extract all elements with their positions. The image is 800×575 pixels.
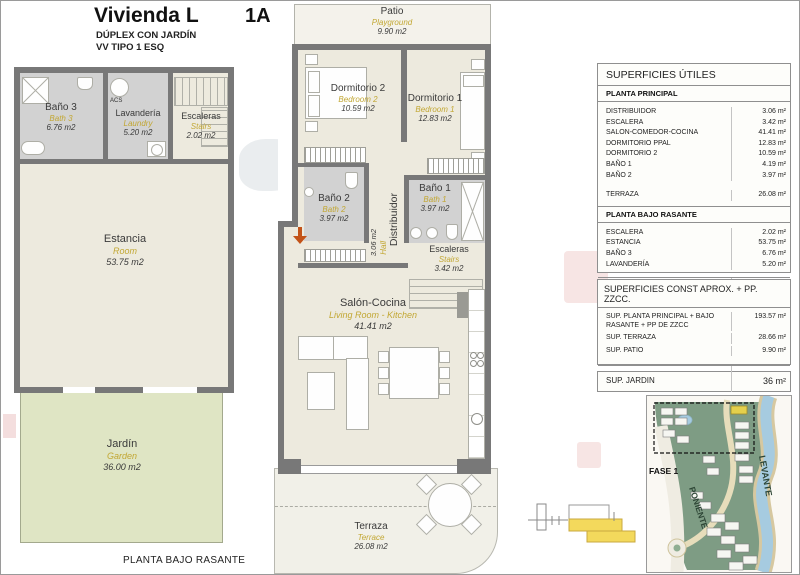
site-map: FASE 1 PONIENTE LEVANTE <box>646 395 792 573</box>
section-sketch-drawing <box>528 496 640 548</box>
table-row-jardin: SUP. JARDIN 36 m² <box>598 372 790 391</box>
door-opening <box>63 387 95 393</box>
bathtub-icon <box>21 141 45 155</box>
dining-chair-icon <box>378 367 389 379</box>
sink-icon <box>410 227 422 239</box>
kitchen-column <box>457 292 468 318</box>
room-label-bath3: Baño 3 Bath 3 6.76 m2 <box>26 102 96 133</box>
highlighted-building <box>731 406 747 414</box>
room-label-stairs-lower: Escaleras Stairs 2.02 m2 <box>175 111 227 140</box>
room-label-laundry: Lavandería Laundry 5.20 m2 <box>109 108 167 137</box>
subtitle-line1: DÚPLEX CON JARDÍN <box>96 30 196 42</box>
table-rows-principal: DISTRIBUIDOR 3.06 m² ESCALERA 3.42 m² SA… <box>598 102 790 184</box>
arrow-head <box>293 236 307 244</box>
shower-icon <box>461 182 484 241</box>
glass-door <box>301 465 457 474</box>
table-row: ESTANCIA 53.75 m² <box>598 238 790 249</box>
surface-table-utiles: SUPERFICIES ÚTILES PLANTA PRINCIPAL DIST… <box>597 63 791 273</box>
nightstand-icon <box>471 59 485 70</box>
subtitle-line2: VV TIPO 1 ESQ <box>96 42 164 54</box>
shower-lines-icon <box>23 78 48 103</box>
room-label-patio: Patio Playground 9.90 m2 <box>332 6 452 37</box>
table-row: SALON-COMEDOR-COCINA 41.41 m² <box>598 128 790 139</box>
page-title: Vivienda L <box>94 4 199 28</box>
stairs-treads <box>174 77 228 106</box>
wardrobe-strip <box>427 158 485 174</box>
door-opening <box>143 387 197 393</box>
table-row: SUP. TERRAZA 28.66 m² <box>598 333 790 344</box>
nightstand-icon <box>305 121 318 132</box>
burner-icon <box>477 360 484 367</box>
burner-icon <box>477 352 484 359</box>
table-row: BAÑO 3 6.76 m² <box>598 249 790 260</box>
hall-en-label: Hall <box>379 241 388 255</box>
toilet-icon <box>345 172 358 189</box>
corridor-cabinet <box>304 249 366 262</box>
wall <box>168 73 173 159</box>
burner-icon <box>470 360 477 367</box>
room-label-estancia: Estancia Room 53.75 m2 <box>89 233 161 267</box>
room-label-terrace: Terraza Terrace 26.08 m2 <box>331 521 411 552</box>
pillow-icon <box>463 75 484 87</box>
table-row: BAÑO 1 4.19 m² <box>598 160 790 171</box>
table-row: SUP. PATIO 9.90 m² <box>598 346 790 357</box>
washer-drum-icon <box>151 144 163 156</box>
table-rows-const: SUP. PLANTA PRINCIPAL + BAJO RASANTE + P… <box>598 308 790 361</box>
unit-code: 1A <box>245 5 271 28</box>
table-rows-bajo: ESCALERA 2.02 m² ESTANCIA 53.75 m² BAÑO … <box>598 223 790 273</box>
table-title: SUPERFICIES ÚTILES <box>598 64 790 86</box>
fase1-label: FASE 1 <box>649 466 679 476</box>
hob-icon <box>470 352 484 366</box>
surface-table-jardin: SUP. JARDIN 36 m² <box>597 371 791 392</box>
nightstand-icon <box>305 54 318 65</box>
kitchen-sink-icon <box>471 413 483 425</box>
wall <box>298 163 368 167</box>
table-title: SUPERFICIES CONST APROX. + PP. ZZCC. <box>598 280 790 308</box>
table-row-terraza: TERRAZA 26.08 m² <box>598 190 790 201</box>
hall-name-label: Distribuidor <box>388 193 400 246</box>
table-row: ESCALERA 2.02 m² <box>598 228 790 239</box>
wall <box>298 263 408 268</box>
entrance-arrow-icon <box>293 227 307 244</box>
shower-lines-icon <box>462 183 483 240</box>
room-label-stairs-main: Escaleras Stairs 3.42 m2 <box>421 244 477 273</box>
wall <box>404 175 485 180</box>
site-map-drawing: FASE 1 PONIENTE LEVANTE <box>647 396 791 572</box>
washing-machine-icon <box>147 141 166 157</box>
table-row: ESCALERA 3.42 m² <box>598 118 790 129</box>
dining-chair-icon <box>439 367 450 379</box>
table-row: DORMITORIO PPAL 12.83 m² <box>598 139 790 150</box>
watermark-blob <box>577 442 601 468</box>
shell-notch <box>278 44 298 227</box>
section-heading: PLANTA PRINCIPAL <box>598 86 790 102</box>
dining-chair-icon <box>439 351 450 363</box>
room-label-bedroom1: Dormitorio 1 Bedroom 1 12.83 m2 <box>405 93 465 124</box>
table-row: LAVANDERÍA 5.20 m² <box>598 260 790 271</box>
wardrobe-strip <box>304 147 366 163</box>
wall <box>457 459 491 474</box>
toilet-icon <box>77 77 93 90</box>
pillow-icon <box>308 95 320 117</box>
table-row: DISTRIBUIDOR 3.06 m² <box>598 107 790 118</box>
wall <box>278 459 301 474</box>
wall <box>103 73 108 159</box>
acs-tank-icon <box>110 78 129 97</box>
shower-icon <box>22 77 49 104</box>
room-label-bath2: Baño 2 Bath 2 3.97 m2 <box>307 193 361 224</box>
dining-chair-icon <box>439 383 450 395</box>
burner-icon <box>470 352 477 359</box>
table-row: DORMITORIO 2 10.59 m² <box>598 149 790 160</box>
table-row: BAÑO 2 3.97 m² <box>598 171 790 182</box>
section-sketch <box>528 496 640 548</box>
sofa-seam <box>333 337 334 359</box>
room-label-bath1: Baño 1 Bath 1 3.97 m2 <box>409 183 461 214</box>
room-label-bedroom2: Dormitorio 2 Bedroom 2 10.59 m2 <box>321 83 395 114</box>
arrow-stem <box>298 227 302 236</box>
plan-sheet: Vivienda L 1A DÚPLEX CON JARDÍN VV TIPO … <box>0 0 800 575</box>
acs-label: ACS <box>110 98 122 104</box>
room-label-living: Salón-Cocina Living Room - Kitchen 41.41… <box>323 297 423 331</box>
kitchen-counter <box>468 289 485 459</box>
dining-chair-icon <box>378 351 389 363</box>
hall-area-label: 3.06 m2 <box>369 229 378 256</box>
room-label-garden: Jardín Garden 36.00 m2 <box>85 438 159 472</box>
surface-table-const: SUPERFICIES CONST APROX. + PP. ZZCC. SUP… <box>597 279 791 365</box>
section-heading: PLANTA BAJO RASANTE <box>598 206 790 223</box>
sofa-icon <box>298 336 368 360</box>
sink-icon <box>426 227 438 239</box>
sofa-icon <box>346 358 369 430</box>
table-row: SUP. PLANTA PRINCIPAL + BAJO RASANTE + P… <box>598 312 790 331</box>
watermark-blob <box>3 414 16 438</box>
plan-caption: PLANTA BAJO RASANTE <box>123 555 245 566</box>
dining-chair-icon <box>378 383 389 395</box>
wall <box>20 159 228 164</box>
dining-table-icon <box>389 347 439 399</box>
toilet-icon <box>446 224 458 240</box>
pillow-icon <box>308 71 320 93</box>
coffee-table-icon <box>307 372 335 410</box>
